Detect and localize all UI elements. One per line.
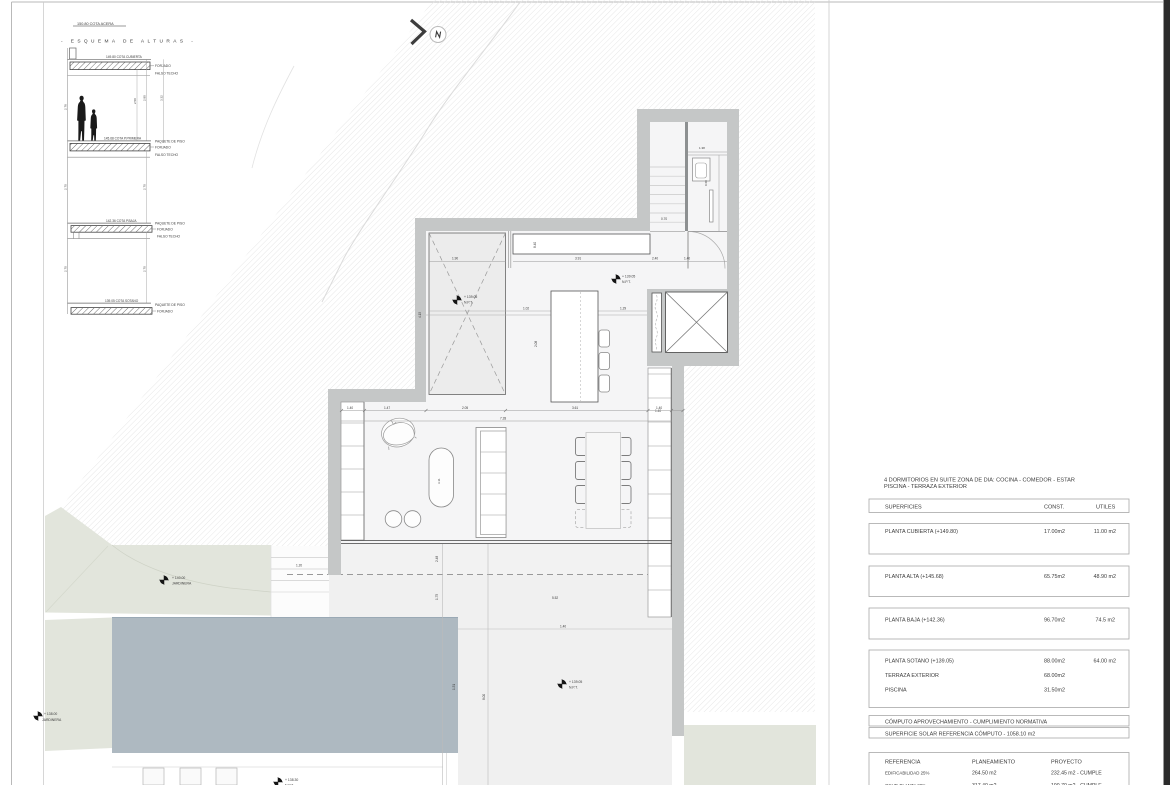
svg-text:1.40: 1.40 — [347, 406, 353, 410]
svg-text:139.05 COTA SOTANO: 139.05 COTA SOTANO — [105, 299, 139, 303]
svg-text:0.60: 0.60 — [704, 180, 708, 186]
svg-text:96.70m2: 96.70m2 — [1044, 618, 1065, 624]
svg-text:2.80: 2.80 — [142, 95, 146, 101]
svg-text:PLANEAMIENTO: PLANEAMIENTO — [972, 760, 1016, 766]
svg-text:4.15: 4.15 — [418, 312, 422, 318]
svg-text:CÓMPUTO APROVECHAMIENTO - CUMP: CÓMPUTO APROVECHAMIENTO - CUMPLIMIENTO N… — [885, 718, 1048, 725]
svg-text:11.00 m2: 11.00 m2 — [1094, 529, 1116, 535]
svg-text:+ 139.05: + 139.05 — [464, 295, 477, 299]
svg-text:PLANTA ALTA (+145.68): PLANTA ALTA (+145.68) — [885, 574, 944, 580]
svg-text:3.11: 3.11 — [437, 478, 441, 484]
svg-text:PROYECTO: PROYECTO — [1051, 760, 1082, 766]
svg-text:N.P.T.: N.P.T. — [464, 301, 473, 305]
svg-text:1.40: 1.40 — [656, 406, 662, 410]
svg-text:7.28: 7.28 — [500, 416, 506, 420]
svg-text:1.90: 1.90 — [452, 257, 458, 261]
svg-text:5.52: 5.52 — [552, 596, 558, 600]
svg-text:2.70: 2.70 — [142, 184, 146, 190]
svg-text:- ESQUEMA DE ALTURAS -: - ESQUEMA DE ALTURAS - — [61, 39, 196, 45]
svg-text:FORJADO: FORJADO — [157, 227, 173, 231]
svg-text:64.00 m2: 64.00 m2 — [1094, 659, 1116, 665]
svg-text:PAQUETE DE PISO: PAQUETE DE PISO — [155, 303, 185, 307]
svg-text:1.75: 1.75 — [435, 594, 439, 600]
svg-text:232.45 m2 - CUMPLE: 232.45 m2 - CUMPLE — [1051, 771, 1102, 777]
svg-text:FALSO TECHO: FALSO TECHO — [157, 235, 180, 239]
svg-text:74.5 m2: 74.5 m2 — [1096, 618, 1115, 624]
svg-text:FORJADO: FORJADO — [155, 146, 171, 150]
svg-text:17.00m2: 17.00m2 — [1044, 529, 1065, 535]
svg-text:145.68 COTA P.PRIMERA: 145.68 COTA P.PRIMERA — [104, 137, 142, 141]
svg-text:8.40: 8.40 — [533, 242, 537, 248]
svg-text:48.90 m2: 48.90 m2 — [1094, 574, 1116, 580]
svg-text:TERRAZA EXTERIOR: TERRAZA EXTERIOR — [885, 673, 939, 679]
svg-text:CONST.: CONST. — [1044, 504, 1065, 510]
svg-text:FALSO TECHO: FALSO TECHO — [155, 72, 178, 76]
svg-text:1.47: 1.47 — [384, 406, 390, 410]
svg-text:FORJADO: FORJADO — [157, 309, 173, 313]
svg-text:SUPERFICIES: SUPERFICIES — [885, 504, 922, 510]
svg-text:PAQUETE DE PISO: PAQUETE DE PISO — [155, 222, 185, 226]
svg-text:N.P.T.: N.P.T. — [622, 280, 631, 284]
svg-text:REFERENCIA: REFERENCIA — [885, 760, 921, 766]
svg-text:3.32: 3.32 — [160, 95, 164, 101]
svg-text:PISCINA - TERRAZA EXTERIOR: PISCINA - TERRAZA EXTERIOR — [884, 484, 967, 490]
svg-text:1.29: 1.29 — [620, 307, 626, 311]
svg-text:4 DORMITORIOS EN SUITE ZONA DE: 4 DORMITORIOS EN SUITE ZONA DE DIA: COCI… — [884, 478, 1075, 484]
svg-text:2.40: 2.40 — [652, 257, 658, 261]
svg-text:FALSO TECHO: FALSO TECHO — [155, 153, 178, 157]
svg-text:3.61: 3.61 — [572, 406, 578, 410]
svg-text:31.50m2: 31.50m2 — [1044, 688, 1065, 694]
svg-text:150.80 COTA ACERA: 150.80 COTA ACERA — [77, 22, 114, 26]
svg-text:1.20: 1.20 — [296, 564, 302, 568]
svg-text:PLANTA BAJA (+142.36): PLANTA BAJA (+142.36) — [885, 618, 945, 624]
svg-text:PISCINA: PISCINA — [885, 688, 907, 694]
svg-text:264.50 m2: 264.50 m2 — [972, 771, 997, 777]
svg-text:+ 140.00: + 140.00 — [172, 576, 185, 580]
svg-text:142.36 COTA P.BAJA: 142.36 COTA P.BAJA — [106, 219, 137, 223]
svg-text:2.78: 2.78 — [64, 104, 68, 110]
svg-text:+ 139.05: + 139.05 — [569, 680, 582, 684]
svg-text:8.00: 8.00 — [482, 694, 486, 700]
svg-text:PLANTA CUBIERTA (+149.80): PLANTA CUBIERTA (+149.80) — [885, 529, 958, 535]
svg-text:UTILES: UTILES — [1096, 504, 1116, 510]
svg-text:0.70: 0.70 — [661, 217, 667, 221]
svg-text:2.05: 2.05 — [462, 406, 468, 410]
svg-text:1.38: 1.38 — [699, 146, 705, 150]
svg-text:68.00m2: 68.00m2 — [1044, 673, 1065, 679]
svg-text:65.75m2: 65.75m2 — [1044, 574, 1065, 580]
svg-text:1.51: 1.51 — [452, 684, 456, 690]
svg-text:EDIFICABILIDAD 25%: EDIFICABILIDAD 25% — [885, 771, 930, 776]
svg-text:2.70: 2.70 — [142, 266, 146, 272]
svg-text:88.00m2: 88.00m2 — [1044, 659, 1065, 665]
svg-text:+ 138.00: + 138.00 — [44, 712, 57, 716]
svg-text:149.80 COTA CUBIERTA: 149.80 COTA CUBIERTA — [106, 55, 143, 59]
svg-text:+ 138.30: + 138.30 — [285, 778, 298, 782]
svg-text:FORJADO: FORJADO — [155, 64, 171, 68]
svg-text:+ 139.05: + 139.05 — [622, 275, 635, 279]
svg-text:PLANTA SOTANO (+139.05): PLANTA SOTANO (+139.05) — [885, 659, 954, 665]
svg-text:N.P.T.: N.P.T. — [569, 686, 578, 690]
svg-text:JARDINERA: JARDINERA — [42, 718, 62, 722]
svg-text:2.08: 2.08 — [534, 341, 538, 347]
svg-text:PAQUETE DE PISO: PAQUETE DE PISO — [155, 139, 185, 143]
svg-text:2.70: 2.70 — [64, 184, 68, 190]
svg-text:2.48: 2.48 — [435, 556, 439, 562]
svg-text:JARDINERA: JARDINERA — [172, 582, 192, 586]
svg-text:1.40: 1.40 — [684, 257, 690, 261]
svg-text:1.02: 1.02 — [523, 307, 529, 311]
svg-text:2.50: 2.50 — [133, 98, 137, 104]
svg-text:2.70: 2.70 — [64, 266, 68, 272]
svg-text:1.40: 1.40 — [560, 625, 566, 629]
svg-text:SUPERFICIE SOLAR REFERENCIA CÓ: SUPERFICIE SOLAR REFERENCIA CÓMPUTO - 10… — [885, 730, 1035, 737]
svg-text:3.91: 3.91 — [575, 257, 581, 261]
